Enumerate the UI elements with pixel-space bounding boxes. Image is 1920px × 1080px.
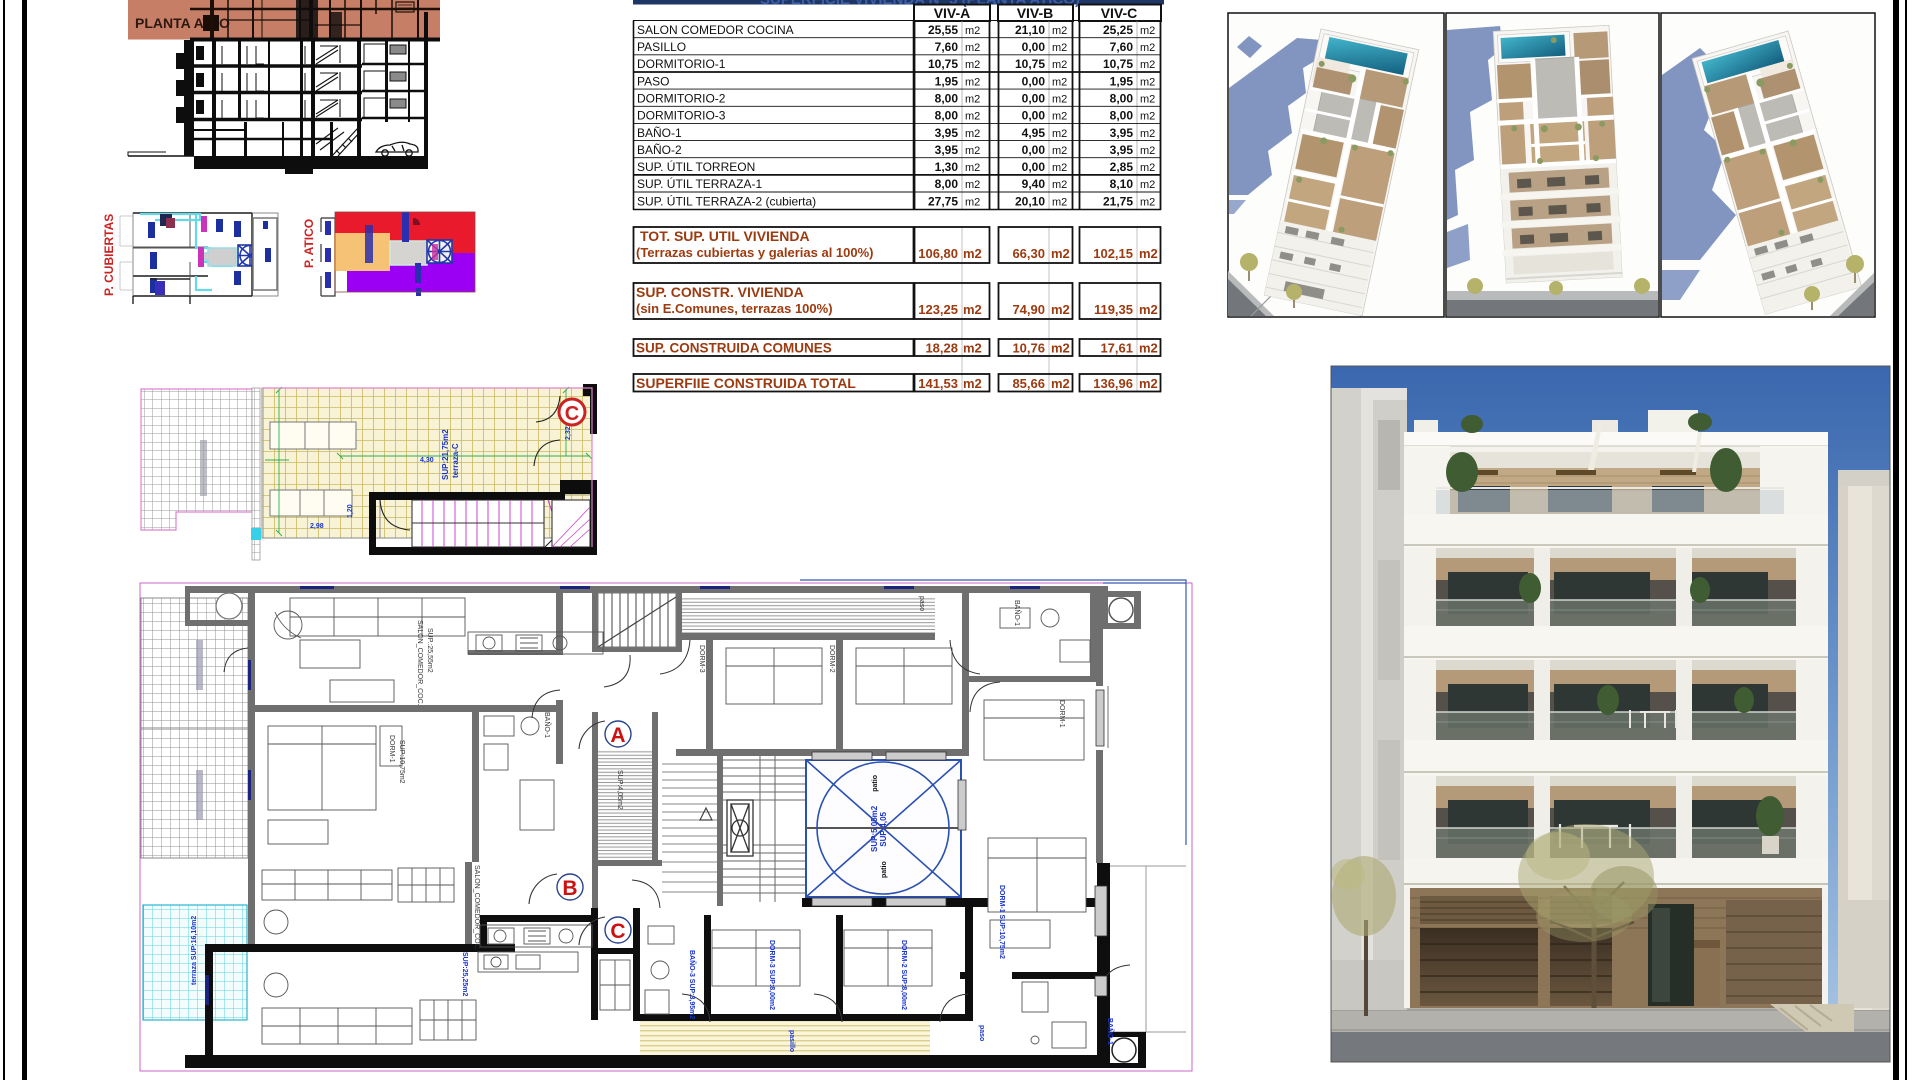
- svg-text:(sin E.Comunes, terrazas 100%): (sin E.Comunes, terrazas 100%): [636, 301, 833, 316]
- svg-text:BAÑO-1: BAÑO-1: [637, 126, 682, 140]
- svg-text:136,96: 136,96: [1093, 376, 1133, 391]
- svg-text:VIV-A: VIV-A: [934, 5, 971, 21]
- svg-text:SUP. CONSTR. VIVIENDA: SUP. CONSTR. VIVIENDA: [636, 284, 804, 300]
- svg-text:8,00: 8,00: [1110, 92, 1134, 106]
- svg-text:0,00: 0,00: [1022, 109, 1046, 123]
- svg-text:m2: m2: [1140, 111, 1155, 123]
- svg-text:10,76: 10,76: [1012, 341, 1045, 356]
- svg-text:4,30: 4,30: [420, 457, 434, 464]
- svg-text:m2: m2: [1139, 302, 1158, 317]
- svg-text:3,95: 3,95: [935, 143, 959, 157]
- svg-text:m2: m2: [963, 246, 982, 261]
- svg-text:2,98: 2,98: [310, 523, 324, 530]
- svg-text:m2: m2: [965, 94, 980, 106]
- svg-text:SALON COMEDOR COCINA: SALON COMEDOR COCINA: [637, 23, 794, 37]
- svg-text:SALON_COMEDOR_COC.: SALON_COMEDOR_COC.: [416, 620, 423, 706]
- svg-text:m2: m2: [1052, 111, 1067, 123]
- svg-text:m2: m2: [965, 111, 980, 123]
- svg-text:18,28: 18,28: [925, 341, 958, 356]
- svg-text:m2: m2: [965, 179, 980, 191]
- svg-text:17,61: 17,61: [1100, 341, 1133, 356]
- svg-text:m2: m2: [1051, 376, 1070, 391]
- svg-text:paso: paso: [978, 1025, 985, 1041]
- svg-text:m2: m2: [1140, 94, 1155, 106]
- svg-text:21,10: 21,10: [1015, 23, 1045, 37]
- svg-text:VIV-B: VIV-B: [1017, 5, 1054, 21]
- svg-text:m2: m2: [1052, 162, 1067, 174]
- svg-text:SUPERFIIE CONSTRUIDA TOTAL: SUPERFIIE CONSTRUIDA TOTAL: [636, 375, 856, 391]
- svg-text:7,60: 7,60: [935, 40, 959, 54]
- svg-text:119,35: 119,35: [1094, 302, 1133, 317]
- svg-text:TOT. SUP. UTIL VIVIENDA: TOT. SUP. UTIL VIVIENDA: [640, 228, 810, 244]
- svg-text:C: C: [610, 920, 625, 943]
- svg-text:P. ATICO: P. ATICO: [302, 219, 316, 268]
- svg-text:m2: m2: [1140, 179, 1155, 191]
- svg-text:terraza-C: terraza-C: [451, 443, 460, 478]
- svg-text:m2: m2: [1139, 376, 1158, 391]
- svg-text:66,30: 66,30: [1012, 246, 1045, 261]
- svg-text:m2: m2: [1052, 196, 1067, 208]
- svg-text:m2: m2: [965, 42, 980, 54]
- svg-text:SUP:5,05m2: SUP:5,05m2: [870, 805, 879, 852]
- svg-text:BAÑO-1: BAÑO-1: [543, 712, 552, 738]
- svg-text:(Terrazas cubiertas y galerias: (Terrazas cubiertas y galerias al 100%): [636, 245, 874, 260]
- svg-text:3,95: 3,95: [1110, 143, 1134, 157]
- svg-text:P. CUBIERTAS: P. CUBIERTAS: [102, 214, 116, 296]
- svg-text:8,00: 8,00: [935, 177, 959, 191]
- svg-text:0,00: 0,00: [1022, 74, 1046, 88]
- svg-text:141,53: 141,53: [918, 376, 958, 391]
- svg-text:m2: m2: [1052, 179, 1067, 191]
- svg-text:m2: m2: [963, 341, 982, 356]
- svg-text:74,90: 74,90: [1012, 302, 1045, 317]
- svg-text:DORM-2 SUP:8,00m2: DORM-2 SUP:8,00m2: [900, 940, 907, 1010]
- svg-text:SALON_COMEDOR_COC.: SALON_COMEDOR_COC.: [473, 865, 480, 951]
- svg-text:20,10: 20,10: [1015, 194, 1045, 208]
- svg-text:m2: m2: [965, 128, 980, 140]
- svg-text:3,95: 3,95: [1110, 126, 1134, 140]
- svg-text:BAÑO-3 SUP:3,95m2: BAÑO-3 SUP:3,95m2: [688, 950, 697, 1019]
- svg-text:DORM-1: DORM-1: [388, 735, 395, 763]
- svg-text:2,32: 2,32: [565, 426, 572, 440]
- svg-text:SUP. ÚTIL TERRAZA-2 (cubierta): SUP. ÚTIL TERRAZA-2 (cubierta): [637, 193, 816, 208]
- svg-text:PASILLO: PASILLO: [637, 40, 686, 54]
- svg-text:9,40: 9,40: [1022, 177, 1046, 191]
- svg-text:SUP:10,75m2: SUP:10,75m2: [398, 740, 405, 784]
- svg-text:pasillo: pasillo: [788, 1030, 795, 1052]
- svg-text:m2: m2: [1051, 246, 1070, 261]
- svg-text:8,00: 8,00: [1110, 109, 1134, 123]
- svg-text:m2: m2: [963, 302, 982, 317]
- svg-text:m2: m2: [1052, 128, 1067, 140]
- svg-text:106,80: 106,80: [918, 246, 958, 261]
- svg-text:123,25: 123,25: [918, 302, 958, 317]
- svg-text:DORM-1: DORM-1: [1058, 700, 1065, 728]
- svg-text:85,66: 85,66: [1012, 376, 1045, 391]
- svg-text:m2: m2: [963, 376, 982, 391]
- svg-text:1,20: 1,20: [347, 504, 354, 518]
- svg-text:21,75: 21,75: [1103, 194, 1133, 208]
- svg-text:8,00: 8,00: [935, 109, 959, 123]
- svg-text:3,95: 3,95: [935, 126, 959, 140]
- svg-text:m2: m2: [1140, 162, 1155, 174]
- svg-text:m2: m2: [1052, 59, 1067, 71]
- svg-text:m2: m2: [1140, 145, 1155, 157]
- svg-text:patio: patio: [881, 861, 888, 878]
- svg-text:10,75: 10,75: [1015, 57, 1045, 71]
- svg-text:SUP. ÚTIL TORREON: SUP. ÚTIL TORREON: [637, 159, 755, 174]
- svg-text:DORMITORIO-3: DORMITORIO-3: [637, 109, 726, 123]
- svg-text:2,85: 2,85: [1110, 160, 1134, 174]
- svg-text:1,30: 1,30: [935, 160, 959, 174]
- svg-text:m2: m2: [965, 76, 980, 88]
- svg-text:m2: m2: [1140, 59, 1155, 71]
- svg-text:m2: m2: [1140, 42, 1155, 54]
- svg-text:DORM-3: DORM-3: [698, 645, 705, 673]
- svg-text:m2: m2: [965, 59, 980, 71]
- svg-text:m2: m2: [965, 25, 980, 37]
- svg-text:m2: m2: [1140, 76, 1155, 88]
- svg-text:DORM-2: DORM-2: [828, 645, 835, 673]
- svg-text:0,00: 0,00: [1022, 160, 1046, 174]
- svg-text:8,10: 8,10: [1110, 177, 1134, 191]
- svg-text:m2: m2: [965, 162, 980, 174]
- svg-text:SUP:25,25m2: SUP:25,25m2: [461, 952, 468, 996]
- svg-text:DORM-3 SUP:8,00m2: DORM-3 SUP:8,00m2: [768, 940, 775, 1010]
- svg-text:m2: m2: [1052, 25, 1067, 37]
- svg-text:A: A: [610, 724, 625, 747]
- svg-text:m2: m2: [1051, 341, 1070, 356]
- svg-text:DORM-1 SUP:10,75m2: DORM-1 SUP:10,75m2: [998, 885, 1005, 959]
- svg-text:paso: paso: [918, 596, 925, 611]
- svg-text:1,95: 1,95: [935, 74, 959, 88]
- svg-text:SUP.:25,55m2: SUP.:25,55m2: [426, 628, 433, 673]
- svg-text:10,75: 10,75: [1103, 57, 1133, 71]
- svg-text:C: C: [565, 403, 579, 425]
- svg-text:VIV-C: VIV-C: [1101, 5, 1138, 21]
- svg-text:SUP. CONSTRUIDA COMUNES: SUP. CONSTRUIDA COMUNES: [636, 341, 832, 356]
- svg-text:10,75: 10,75: [928, 57, 958, 71]
- svg-text:1,95: 1,95: [1110, 74, 1134, 88]
- svg-text:m2: m2: [1139, 341, 1158, 356]
- svg-text:m2: m2: [965, 196, 980, 208]
- svg-text:DORMITORIO-1: DORMITORIO-1: [637, 57, 726, 71]
- svg-text:m2: m2: [1140, 25, 1155, 37]
- svg-text:25,55: 25,55: [928, 23, 958, 37]
- svg-text:BAÑO-2: BAÑO-2: [637, 143, 682, 157]
- svg-text:SUP:4,05: SUP:4,05: [879, 811, 888, 846]
- svg-text:102,15: 102,15: [1093, 246, 1133, 261]
- svg-text:25,25: 25,25: [1103, 23, 1133, 37]
- svg-text:m2: m2: [965, 145, 980, 157]
- svg-text:B: B: [562, 877, 577, 900]
- svg-text:DORMITORIO-2: DORMITORIO-2: [637, 92, 726, 106]
- svg-text:7,60: 7,60: [1110, 40, 1134, 54]
- svg-text:SUP. ÚTIL TERRAZA-1: SUP. ÚTIL TERRAZA-1: [637, 176, 762, 191]
- svg-text:BAÑO-1: BAÑO-1: [1106, 1018, 1115, 1045]
- svg-text:SUP:4,05m2: SUP:4,05m2: [616, 770, 623, 810]
- svg-text:0,00: 0,00: [1022, 143, 1046, 157]
- svg-text:BAÑO-1: BAÑO-1: [1013, 600, 1022, 626]
- svg-text:0,00: 0,00: [1022, 40, 1046, 54]
- svg-text:m2: m2: [1052, 76, 1067, 88]
- svg-text:SUP:21,75m2: SUP:21,75m2: [441, 429, 450, 480]
- svg-text:PLANTA AT: PLANTA AT: [135, 15, 212, 31]
- svg-text:m2: m2: [1052, 94, 1067, 106]
- svg-text:m2: m2: [1051, 302, 1070, 317]
- svg-text:8,00: 8,00: [935, 92, 959, 106]
- svg-text:m2: m2: [1140, 128, 1155, 140]
- svg-text:m2: m2: [1052, 42, 1067, 54]
- svg-text:4,95: 4,95: [1022, 126, 1046, 140]
- svg-text:m2: m2: [1139, 246, 1158, 261]
- svg-text:PASO: PASO: [637, 74, 669, 88]
- svg-text:27,75: 27,75: [928, 194, 958, 208]
- svg-text:terraza SUP:16,10m2: terraza SUP:16,10m2: [191, 916, 198, 985]
- svg-text:0,00: 0,00: [1022, 92, 1046, 106]
- svg-text:m2: m2: [1140, 196, 1155, 208]
- svg-text:m2: m2: [1052, 145, 1067, 157]
- svg-text:patio: patio: [872, 775, 879, 792]
